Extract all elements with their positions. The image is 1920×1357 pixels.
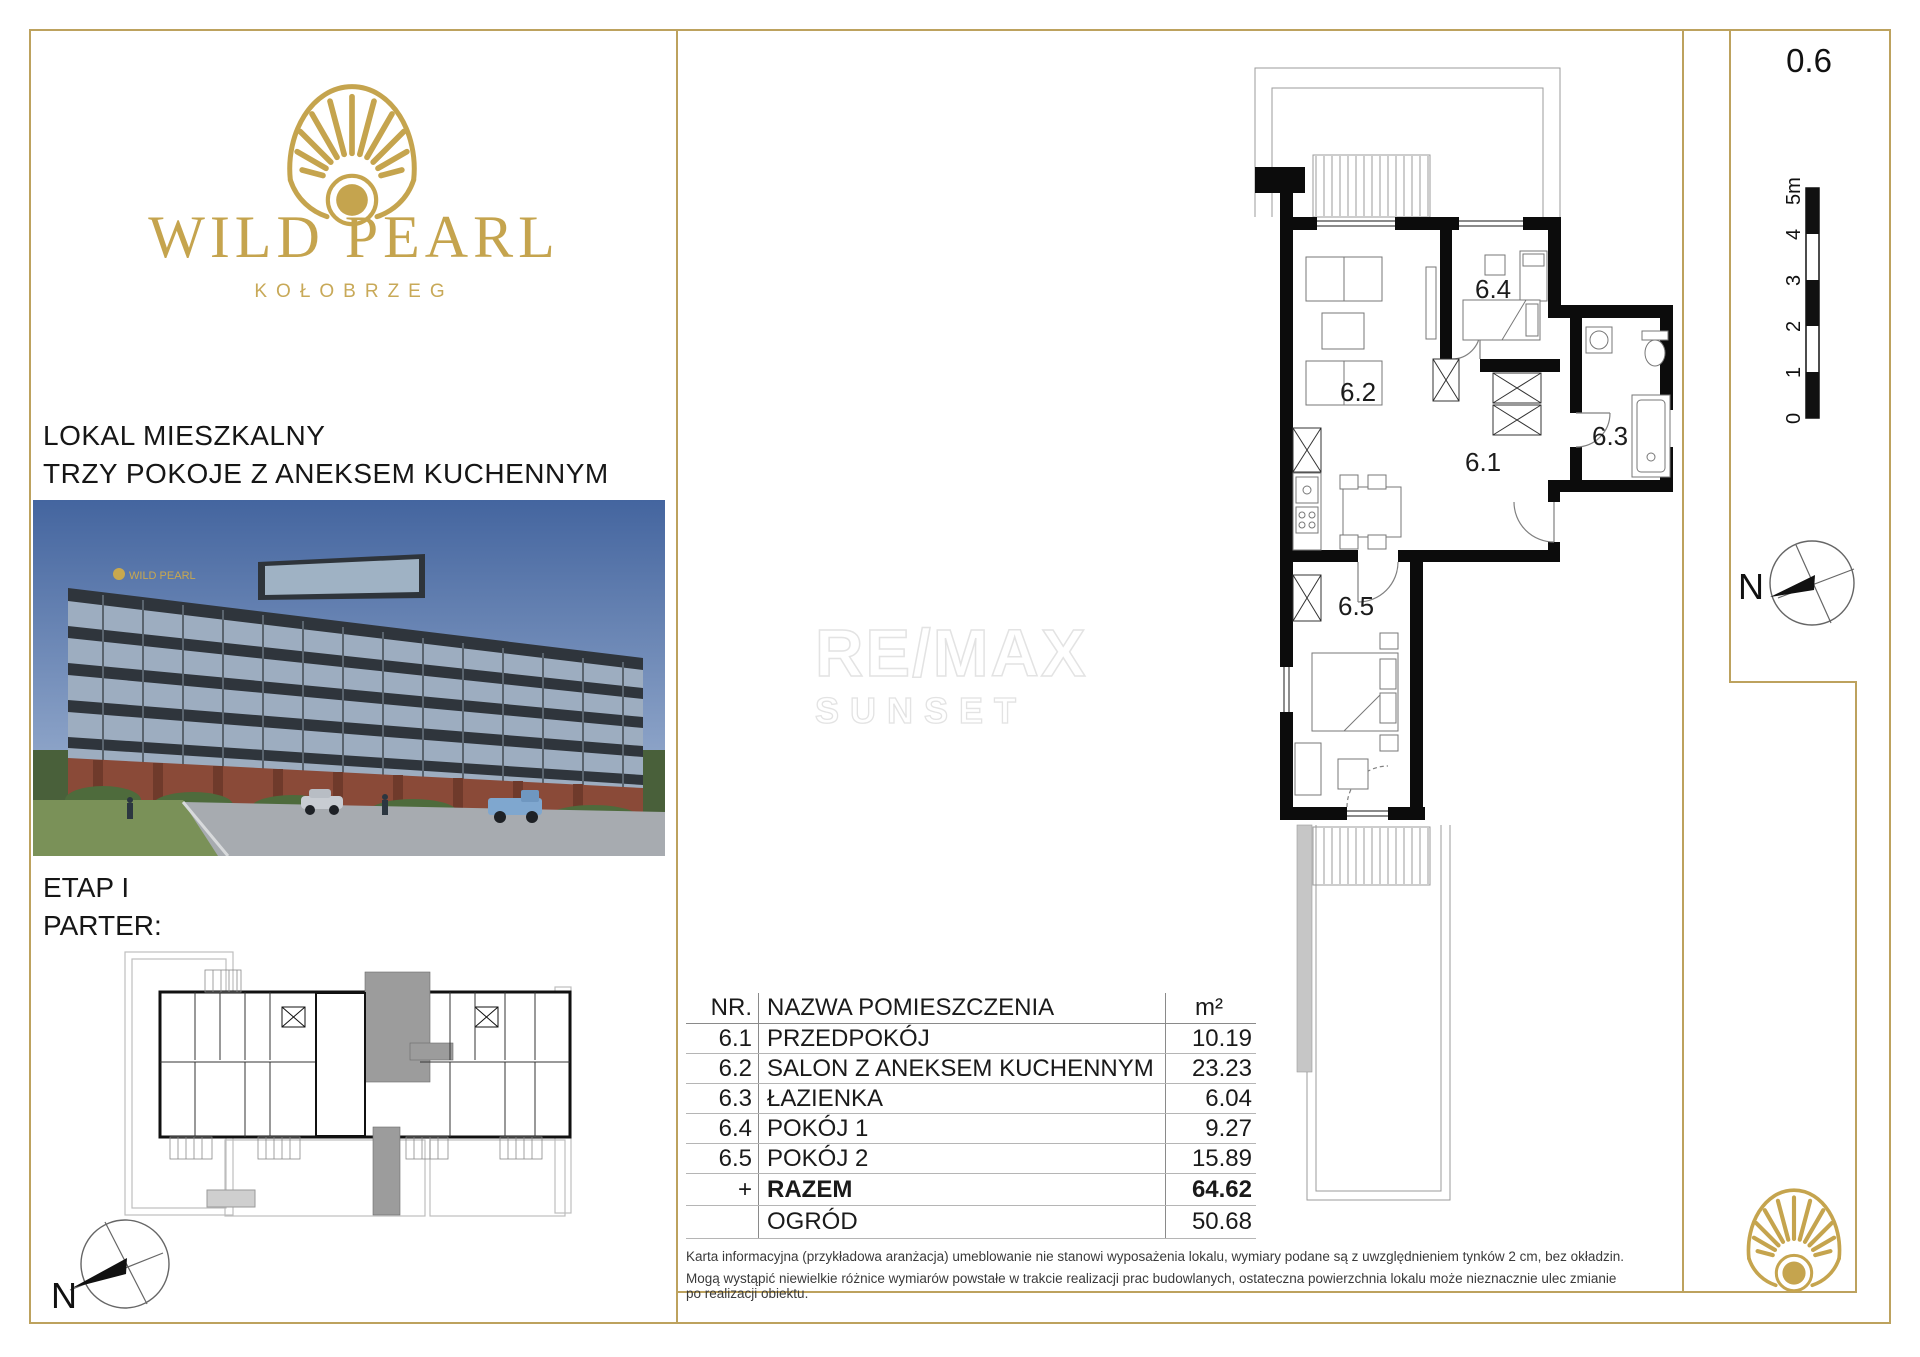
svg-text:2: 2 xyxy=(1783,321,1805,332)
table-row: 6.2 SALON Z ANEKSEM KUCHENNYM 23.23 xyxy=(686,1054,1256,1084)
table-header: NR. NAZWA POMIESZCZENIA m² xyxy=(686,993,1256,1024)
room-label-6-1: 6.1 xyxy=(1465,447,1501,477)
floor-plan-card: WILD PEARL KOŁOBRZEG LOKAL MIESZKALNY TR… xyxy=(0,0,1920,1357)
area-table: NR. NAZWA POMIESZCZENIA m² 6.1 PRZEDPOKÓ… xyxy=(686,993,1256,1239)
shell-icon-bottom xyxy=(1733,1178,1855,1295)
watermark: RE/MAX SUNSET xyxy=(815,615,1088,732)
table-row: 6.5 POKÓJ 2 15.89 xyxy=(686,1144,1256,1174)
svg-text:1: 1 xyxy=(1783,367,1805,378)
room-label-6-4: 6.4 xyxy=(1475,274,1511,304)
svg-text:WILD PEARL: WILD PEARL xyxy=(129,570,196,582)
svg-text:3: 3 xyxy=(1783,275,1805,286)
disclaimer-line-2: Mogą wystąpić niewielkie różnice wymiaró… xyxy=(686,1271,1626,1301)
apartment-floor-plan: 6.2 6.4 6.1 6.3 6.5 xyxy=(1240,55,1690,1250)
scale-bar: 0 1 2 3 4 5m xyxy=(1783,177,1819,424)
room-label-6-5: 6.5 xyxy=(1338,591,1374,621)
north-label: N xyxy=(51,1275,77,1316)
table-garden-row: OGRÓD 50.68 xyxy=(686,1206,1256,1239)
compass-rose-right: N xyxy=(1738,541,1854,625)
stage-label: ETAP I xyxy=(43,872,129,904)
brand-city: KOŁOBRZEG xyxy=(31,281,677,303)
listing-subtype: TRZY POKOJE Z ANEKSEM KUCHENNYM xyxy=(43,458,609,490)
table-total-row: + RAZEM 64.62 xyxy=(686,1174,1256,1206)
watermark-line2: SUNSET xyxy=(815,690,1088,732)
north-label: N xyxy=(1738,566,1764,607)
listing-type: LOKAL MIESZKALNY xyxy=(43,420,325,452)
scale-and-compass-panel: 0 1 2 3 4 5m N xyxy=(1730,29,1890,683)
building-photo: WILD PEARL xyxy=(33,500,665,856)
svg-text:0: 0 xyxy=(1783,413,1805,424)
watermark-line1: RE/MAX xyxy=(815,615,1088,692)
overview-floor-plan xyxy=(110,950,590,1250)
garden-wall-strip xyxy=(1297,825,1312,1072)
floor-label: PARTER: xyxy=(43,910,162,942)
table-row: 6.1 PRZEDPOKÓJ 10.19 xyxy=(686,1024,1256,1054)
svg-text:4: 4 xyxy=(1783,229,1805,240)
inner-right-border xyxy=(1855,681,1857,1293)
brand-name: WILD PEARL xyxy=(31,203,677,272)
disclaimer-line-1: Karta informacyjna (przykładowa aranżacj… xyxy=(686,1249,1626,1264)
north-arrow xyxy=(1770,575,1815,597)
table-row: 6.3 ŁAZIENKA 6.04 xyxy=(686,1084,1256,1114)
room-label-6-2: 6.2 xyxy=(1340,377,1376,407)
table-row: 6.4 POKÓJ 1 9.27 xyxy=(686,1114,1256,1144)
furniture xyxy=(1293,251,1670,795)
svg-text:5m: 5m xyxy=(1783,177,1805,205)
north-arrow xyxy=(72,1258,127,1288)
room-label-6-3: 6.3 xyxy=(1592,421,1628,451)
compass-rose-left: N xyxy=(45,1212,205,1322)
